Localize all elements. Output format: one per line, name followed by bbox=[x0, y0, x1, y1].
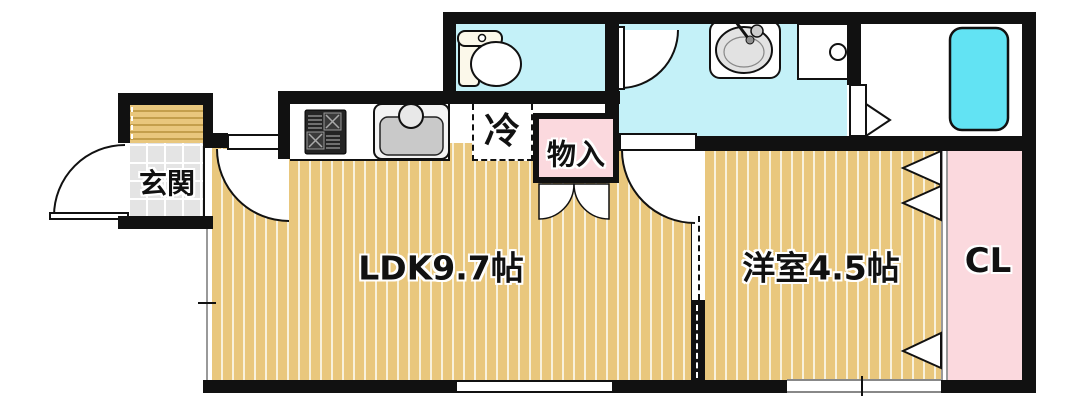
wall-ldk-western-divider bbox=[691, 300, 705, 387]
toilet-icon bbox=[458, 31, 521, 86]
closet-label: CL bbox=[965, 244, 1012, 278]
washroom-door-swing bbox=[620, 134, 696, 223]
wall-entrance-bottom bbox=[118, 216, 213, 229]
stove-icon bbox=[305, 110, 346, 154]
wall-entrance-top bbox=[118, 93, 213, 105]
washing-machine-pan-icon bbox=[798, 24, 849, 79]
refrigerator-label: 冷 bbox=[484, 114, 520, 150]
wall-toilet-washroom bbox=[605, 12, 619, 115]
western-room-label: 洋室4.5帖 bbox=[742, 252, 899, 285]
bathtub-icon bbox=[950, 28, 1008, 130]
entrance-label: 玄関 bbox=[139, 170, 195, 198]
window-ldk-bottom bbox=[456, 381, 613, 392]
ldk-label: LDK9.7帖 bbox=[358, 252, 523, 285]
wall-right-outer bbox=[1022, 12, 1036, 393]
sliding-door-dashed-line bbox=[698, 216, 700, 300]
window-tick-bottom bbox=[861, 376, 863, 396]
wall-kitchen-corner bbox=[278, 91, 290, 159]
washbasin-icon bbox=[710, 21, 780, 78]
wall-kitchen-top bbox=[278, 91, 620, 104]
wall-entrance-hall-line bbox=[203, 143, 205, 216]
window-ldk-left bbox=[203, 229, 212, 380]
floorplan: 玄関 LDK9.7帖 洋室4.5帖 CL 冷 物入 bbox=[0, 0, 1077, 413]
wall-south-of-wet-area bbox=[695, 136, 1036, 151]
symbols-layer bbox=[0, 0, 1077, 413]
storage-double-doors bbox=[539, 184, 609, 219]
wall-top bbox=[443, 12, 1036, 24]
sliding-door-dashed-line-on-wall bbox=[696, 305, 698, 378]
window-tick-left bbox=[198, 302, 216, 304]
kitchen-sink-icon bbox=[374, 104, 449, 159]
bathroom-folding-door bbox=[850, 85, 890, 136]
wall-hall-stub bbox=[203, 133, 228, 148]
wall-porch-left bbox=[118, 93, 130, 143]
closet-folding-door bbox=[903, 151, 941, 368]
wall-washroom-bathroom bbox=[847, 12, 861, 85]
storage-label: 物入 bbox=[547, 141, 605, 170]
toilet-door-swing bbox=[615, 27, 678, 89]
window-western-bottom bbox=[787, 379, 941, 393]
front-door-swing bbox=[50, 145, 128, 219]
